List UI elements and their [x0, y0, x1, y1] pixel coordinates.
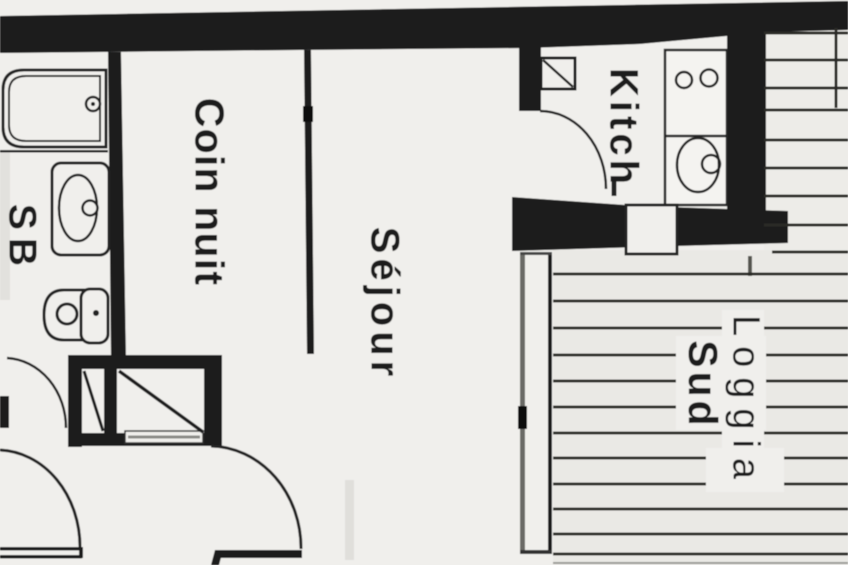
svg-text:Coin nuit: Coin nuit — [187, 98, 233, 286]
svg-text:Sud: Sud — [680, 340, 726, 429]
svg-text:Séjour: Séjour — [362, 227, 406, 381]
svg-text:Loggia: Loggia — [724, 315, 766, 489]
svg-text:SB: SB — [1, 204, 44, 274]
svg-text:Kitch: Kitch — [601, 68, 645, 188]
